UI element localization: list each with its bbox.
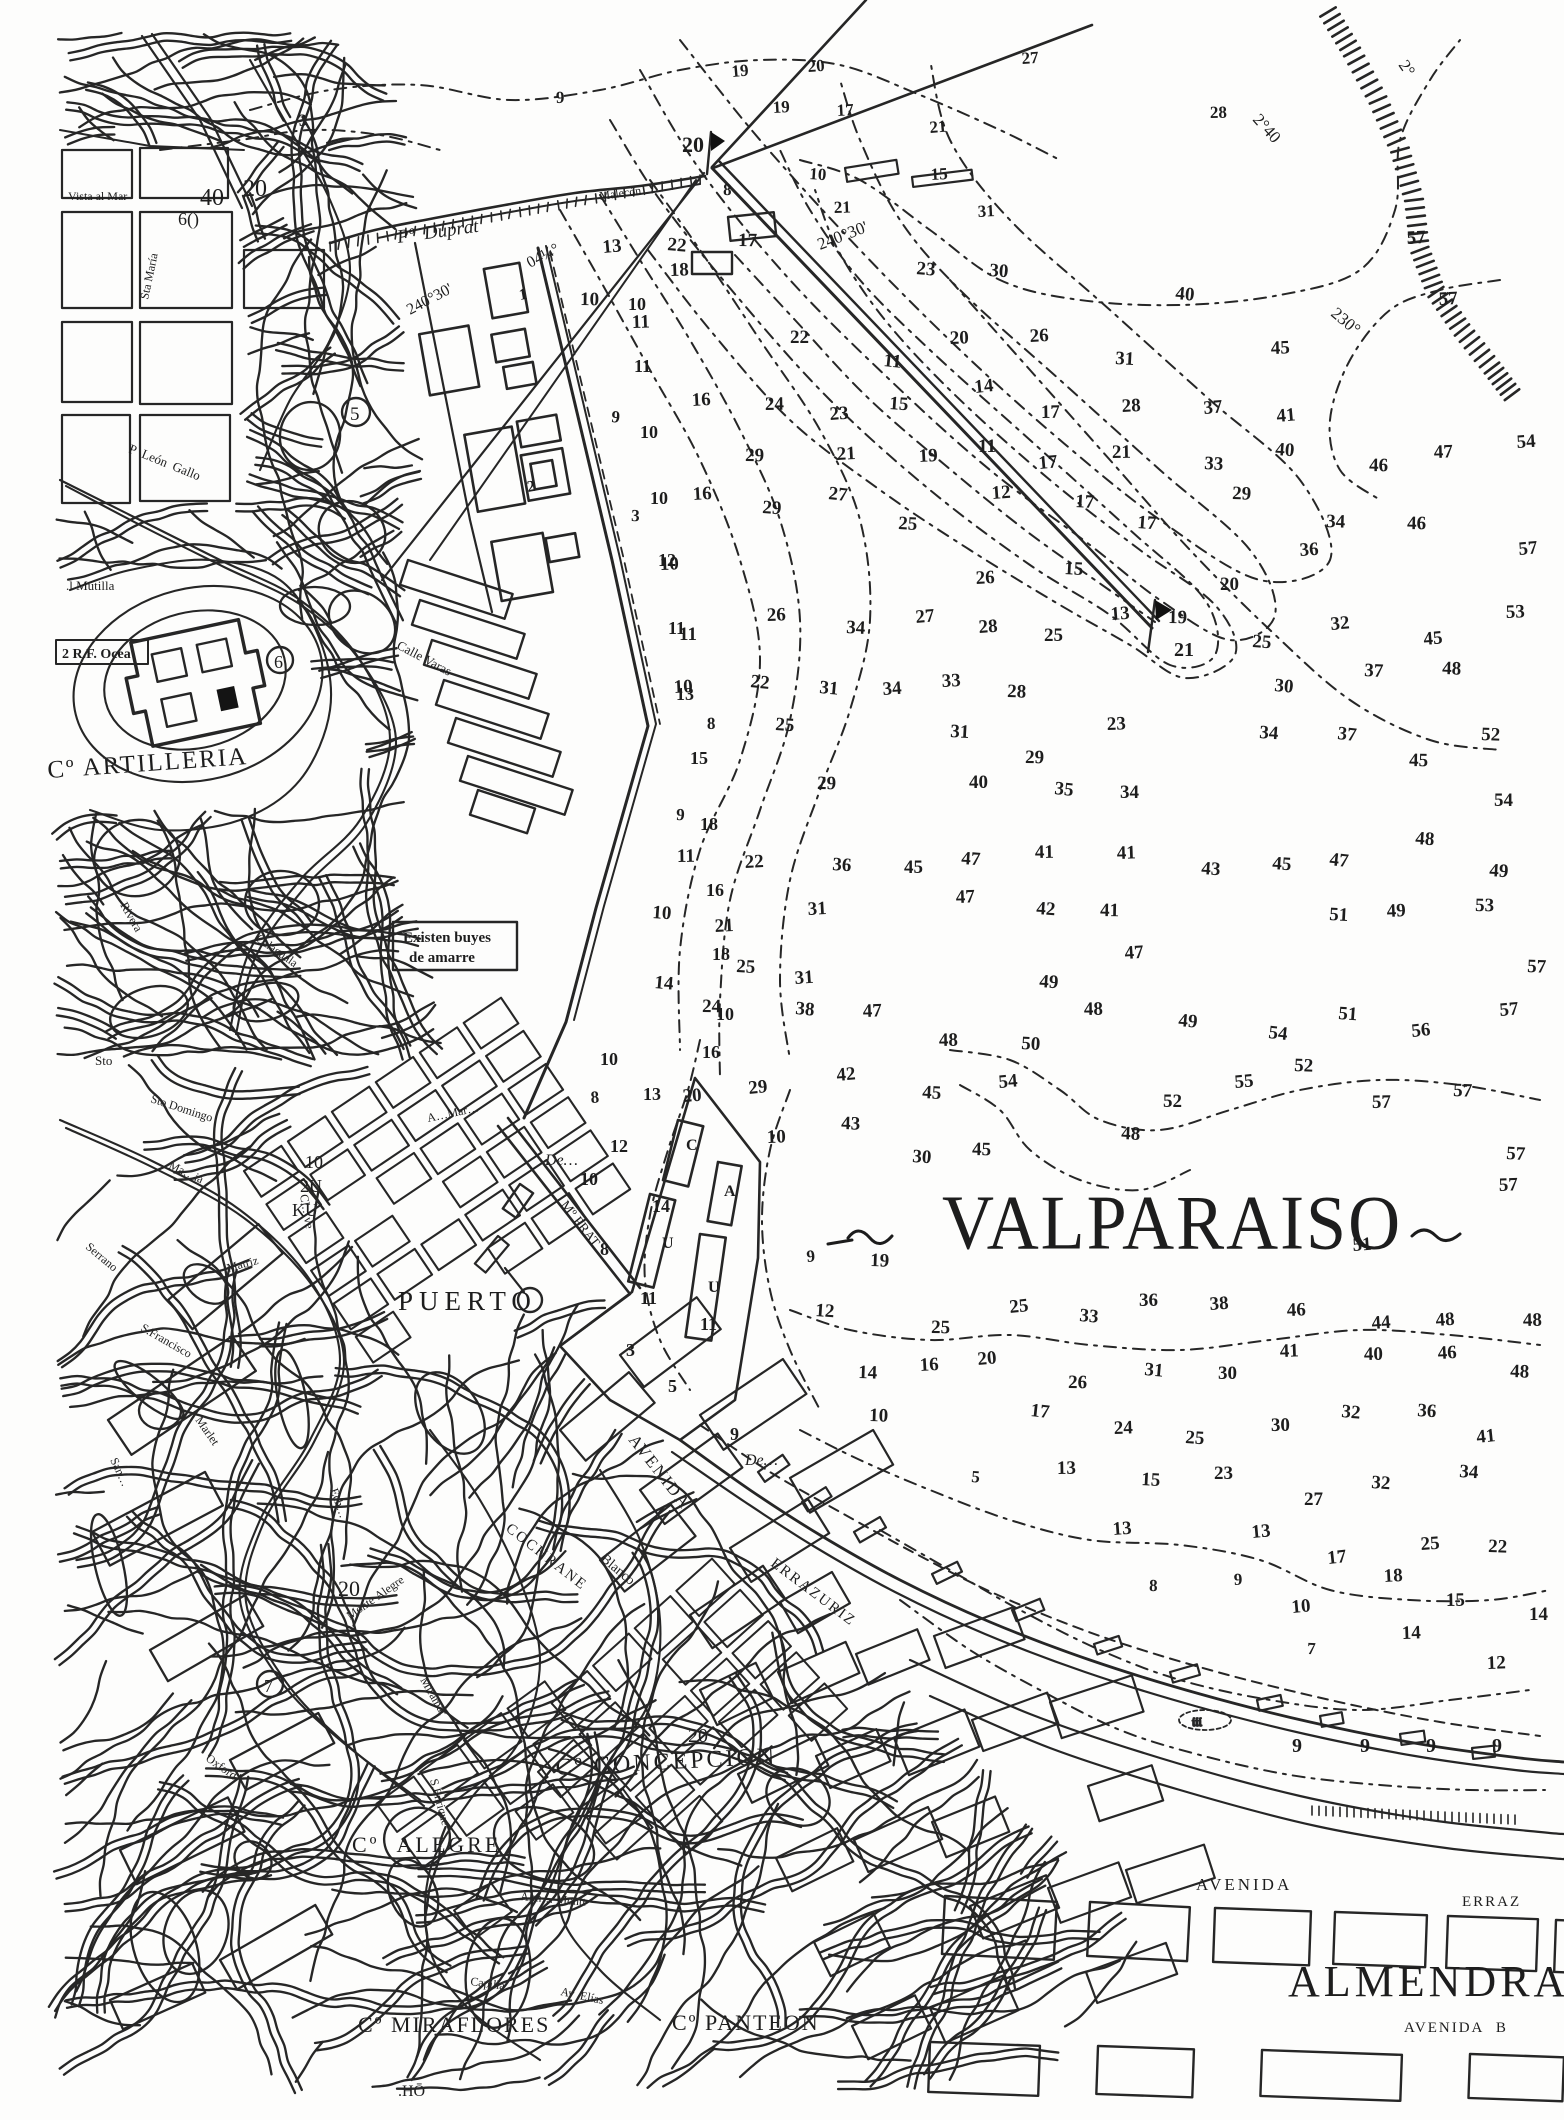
- svg-text:49: 49: [1039, 971, 1059, 993]
- svg-text:AVENIDA: AVENIDA: [1196, 1875, 1292, 1894]
- svg-text:48: 48: [1442, 658, 1462, 680]
- svg-text:47: 47: [1124, 942, 1145, 964]
- svg-text:15: 15: [1064, 558, 1084, 580]
- svg-text:5: 5: [350, 404, 360, 425]
- svg-text:ERRAZ: ERRAZ: [1462, 1894, 1521, 1910]
- svg-text:8: 8: [1149, 1576, 1158, 1595]
- svg-text:8: 8: [590, 1087, 600, 1107]
- svg-text:18: 18: [669, 259, 689, 281]
- svg-text:21: 21: [836, 443, 856, 465]
- svg-text:8: 8: [723, 180, 732, 199]
- svg-text:52: 52: [1294, 1055, 1314, 1077]
- svg-text:14: 14: [1529, 1604, 1549, 1625]
- svg-text:57: 57: [1527, 956, 1547, 978]
- svg-text:30: 30: [1271, 1415, 1290, 1436]
- svg-text:41: 41: [1475, 1425, 1496, 1448]
- svg-text:19: 19: [918, 445, 938, 467]
- svg-text:9: 9: [1292, 1735, 1302, 1757]
- svg-text:7: 7: [1307, 1639, 1317, 1658]
- svg-text:45: 45: [1272, 853, 1292, 875]
- svg-text:48: 48: [1084, 999, 1103, 1020]
- svg-text:57: 57: [1406, 227, 1427, 249]
- svg-text:6(): 6(): [178, 209, 199, 230]
- svg-text:17: 17: [836, 100, 854, 120]
- svg-text:21: 21: [833, 197, 851, 217]
- svg-text:47: 47: [961, 848, 982, 870]
- svg-text:57: 57: [1506, 1143, 1527, 1165]
- svg-text:22: 22: [1488, 1536, 1508, 1558]
- svg-text:12: 12: [815, 1300, 835, 1322]
- svg-text:22: 22: [790, 327, 809, 348]
- svg-text:16: 16: [919, 1354, 939, 1376]
- svg-text:31: 31: [977, 201, 995, 221]
- svg-text:A: A: [724, 1183, 736, 1200]
- svg-text:20: 20: [977, 1347, 998, 1370]
- svg-text:46: 46: [1437, 1342, 1457, 1364]
- svg-text:41: 41: [1279, 1340, 1299, 1362]
- svg-text:48: 48: [1523, 1310, 1542, 1331]
- svg-text:9: 9: [1426, 1735, 1436, 1757]
- svg-text:14: 14: [652, 1196, 670, 1216]
- svg-text:41: 41: [1276, 404, 1297, 427]
- svg-text:36: 36: [1139, 1290, 1158, 1311]
- svg-text:16: 16: [692, 483, 712, 505]
- svg-text:57: 57: [1372, 1092, 1392, 1113]
- svg-text:49: 49: [1386, 900, 1406, 922]
- svg-text:55: 55: [1234, 1070, 1255, 1093]
- svg-text:41: 41: [1116, 842, 1136, 864]
- svg-text:9: 9: [611, 407, 621, 427]
- svg-text:11: 11: [631, 311, 650, 333]
- svg-text:53: 53: [1475, 895, 1494, 916]
- svg-text:32: 32: [1371, 1472, 1391, 1494]
- svg-text:54: 54: [1516, 431, 1537, 453]
- svg-text:33: 33: [941, 670, 961, 692]
- svg-text:26: 26: [1029, 325, 1049, 347]
- svg-text:9: 9: [730, 1424, 739, 1444]
- svg-text:46: 46: [1407, 513, 1426, 534]
- svg-text:47: 47: [1433, 441, 1453, 463]
- svg-text:10: 10: [652, 902, 672, 924]
- svg-text:17: 17: [1326, 1546, 1348, 1569]
- svg-text:20: 20: [682, 1085, 702, 1107]
- svg-text:32: 32: [1341, 1401, 1362, 1424]
- svg-text:23: 23: [916, 258, 937, 281]
- svg-text:10: 10: [766, 1126, 786, 1148]
- svg-text:34: 34: [1120, 782, 1140, 803]
- svg-text:30: 30: [989, 260, 1009, 282]
- svg-text:15: 15: [690, 748, 708, 768]
- svg-text:19: 19: [1168, 607, 1187, 628]
- svg-text:21: 21: [714, 915, 734, 937]
- svg-text:3: 3: [631, 506, 640, 525]
- svg-text:18: 18: [700, 814, 718, 834]
- svg-text:14: 14: [654, 972, 675, 995]
- svg-text:Cº MIRAFLORES: Cº MIRAFLORES: [358, 2012, 550, 2037]
- svg-text:44: 44: [1371, 1312, 1392, 1334]
- svg-text:28: 28: [1007, 681, 1027, 703]
- svg-text:52: 52: [1481, 724, 1501, 746]
- svg-text:29: 29: [1025, 747, 1044, 768]
- svg-text:10: 10: [1291, 1595, 1312, 1618]
- svg-text:9: 9: [1360, 1735, 1370, 1757]
- svg-text:.l Mutilla: .l Mutilla: [66, 578, 115, 593]
- svg-text:11: 11: [882, 350, 902, 373]
- svg-text:22: 22: [667, 234, 688, 257]
- svg-text:48: 48: [1510, 1361, 1530, 1383]
- svg-text:40: 40: [1275, 439, 1295, 461]
- svg-text:19: 19: [870, 1250, 890, 1272]
- svg-text:9: 9: [1492, 1735, 1502, 1757]
- svg-text:36: 36: [1417, 1400, 1437, 1422]
- svg-text:36: 36: [832, 854, 852, 876]
- svg-text:47: 47: [862, 1000, 882, 1022]
- svg-text:20: 20: [1220, 574, 1239, 595]
- svg-text:37: 37: [1336, 723, 1358, 746]
- svg-text:18: 18: [712, 944, 730, 964]
- svg-text:25: 25: [931, 1317, 950, 1338]
- svg-text:45: 45: [922, 1082, 942, 1104]
- svg-text:27: 27: [915, 605, 936, 628]
- svg-text:33: 33: [1079, 1305, 1100, 1328]
- svg-text:19: 19: [772, 97, 790, 117]
- svg-text:PUERTO: PUERTO: [398, 1286, 537, 1316]
- svg-text:10: 10: [305, 1152, 323, 1172]
- svg-text:15: 15: [1141, 1469, 1161, 1491]
- svg-text:8: 8: [600, 1239, 609, 1259]
- svg-text:17: 17: [1075, 491, 1096, 513]
- svg-text:40: 40: [1175, 283, 1196, 306]
- svg-text:54: 54: [998, 1070, 1019, 1093]
- svg-text:40: 40: [969, 772, 988, 793]
- svg-text:46: 46: [1286, 1299, 1306, 1321]
- svg-text:U: U: [708, 1279, 720, 1296]
- svg-text:25: 25: [1185, 1427, 1205, 1449]
- svg-text:29: 29: [762, 497, 782, 519]
- svg-text:31: 31: [819, 677, 840, 700]
- svg-text:21: 21: [929, 117, 948, 137]
- svg-text:20: 20: [807, 56, 825, 76]
- svg-text:16: 16: [702, 1042, 720, 1062]
- svg-text:41: 41: [1100, 900, 1119, 921]
- svg-text:12: 12: [610, 1136, 628, 1156]
- svg-text:38: 38: [795, 998, 816, 1021]
- svg-text:15: 15: [889, 393, 909, 415]
- svg-text:5: 5: [668, 1376, 677, 1396]
- svg-text:25: 25: [1044, 625, 1063, 646]
- svg-text:27: 27: [1304, 1489, 1324, 1510]
- svg-text:24: 24: [765, 394, 785, 415]
- svg-text:35: 35: [1053, 778, 1074, 801]
- svg-text:36: 36: [1299, 539, 1319, 561]
- svg-text:48: 48: [1435, 1309, 1455, 1331]
- svg-text:13: 13: [1251, 1520, 1272, 1543]
- svg-text:17: 17: [738, 230, 758, 251]
- svg-text:42: 42: [1036, 898, 1056, 920]
- svg-text:11: 11: [668, 618, 685, 638]
- svg-text:48: 48: [1121, 1123, 1141, 1145]
- svg-text:15: 15: [1446, 1590, 1465, 1611]
- svg-text:46: 46: [1369, 455, 1388, 476]
- svg-text:34: 34: [1326, 511, 1346, 533]
- svg-text:16: 16: [706, 880, 724, 900]
- svg-text:34: 34: [882, 678, 903, 700]
- svg-text:37: 37: [1203, 396, 1224, 419]
- svg-text:13: 13: [1057, 1458, 1076, 1479]
- svg-text:20: 20: [949, 327, 969, 349]
- svg-text:57: 57: [1453, 1080, 1473, 1102]
- svg-text:30: 30: [1218, 1363, 1237, 1384]
- svg-text:16: 16: [691, 389, 711, 411]
- svg-text:de amarre: de amarre: [409, 950, 475, 966]
- svg-text:37: 37: [1364, 660, 1385, 682]
- svg-text:VALPARAISO: VALPARAISO: [942, 1180, 1402, 1266]
- svg-text:27: 27: [1021, 48, 1040, 68]
- svg-text:13: 13: [602, 235, 623, 258]
- svg-text:38: 38: [1209, 1293, 1229, 1315]
- svg-text:10: 10: [650, 488, 668, 508]
- svg-text:25: 25: [898, 513, 918, 535]
- svg-text:45: 45: [972, 1139, 991, 1160]
- svg-text:54: 54: [1494, 790, 1514, 811]
- svg-text:6: 6: [274, 652, 283, 672]
- svg-text:49: 49: [1178, 1010, 1199, 1033]
- svg-text:21: 21: [1174, 639, 1194, 661]
- svg-text:43: 43: [841, 1113, 861, 1135]
- svg-text:51: 51: [1329, 904, 1349, 926]
- svg-text:9: 9: [556, 88, 565, 107]
- svg-text:22: 22: [749, 671, 770, 694]
- svg-text:14: 14: [858, 1362, 878, 1384]
- svg-text:31: 31: [794, 967, 814, 989]
- svg-text:28: 28: [1210, 103, 1227, 122]
- svg-text:5: 5: [971, 1467, 981, 1487]
- svg-text:31: 31: [807, 898, 827, 920]
- svg-text:48: 48: [939, 1030, 958, 1051]
- svg-text:56: 56: [1410, 1019, 1431, 1042]
- svg-text:Sto: Sto: [95, 1053, 112, 1068]
- svg-text:14: 14: [1401, 1622, 1421, 1644]
- svg-text:57: 57: [1438, 288, 1459, 310]
- svg-text:AVENIDA B: AVENIDA B: [1404, 2020, 1508, 2036]
- svg-text:U: U: [662, 1235, 674, 1252]
- svg-text:51: 51: [1338, 1003, 1358, 1025]
- svg-text:48: 48: [1415, 828, 1435, 850]
- svg-text:25: 25: [1420, 1533, 1440, 1555]
- svg-text:25: 25: [1252, 631, 1272, 653]
- svg-text:54: 54: [1267, 1022, 1289, 1045]
- svg-text:47: 47: [1328, 849, 1350, 872]
- svg-text:32: 32: [1330, 612, 1351, 635]
- svg-text:41: 41: [1035, 842, 1054, 863]
- svg-text:10: 10: [628, 294, 646, 314]
- svg-text:Vista al Mar: Vista al Mar: [68, 189, 127, 203]
- svg-text:17: 17: [1029, 1400, 1051, 1423]
- svg-text:43: 43: [1201, 858, 1221, 880]
- svg-text:49: 49: [1489, 860, 1509, 882]
- svg-text:34: 34: [1259, 722, 1280, 744]
- svg-text:50: 50: [1021, 1033, 1041, 1055]
- svg-text:10: 10: [640, 422, 658, 442]
- svg-text:C: C: [686, 1137, 698, 1154]
- svg-text:10: 10: [600, 1049, 618, 1069]
- svg-text:11: 11: [634, 356, 651, 376]
- svg-text:9: 9: [806, 1246, 816, 1266]
- svg-text:11: 11: [700, 1314, 717, 1334]
- svg-text:29: 29: [817, 773, 836, 794]
- svg-text:29: 29: [745, 445, 764, 466]
- svg-text:15: 15: [930, 164, 948, 184]
- svg-text:20: 20: [682, 132, 704, 157]
- svg-text:24: 24: [1113, 1417, 1133, 1439]
- svg-text:13: 13: [1110, 603, 1130, 625]
- svg-text:12: 12: [1486, 1652, 1506, 1674]
- svg-text:17: 17: [1041, 402, 1061, 423]
- svg-text:57: 57: [1498, 1174, 1518, 1196]
- svg-text:.HŌ: .HŌ: [398, 2083, 425, 2100]
- svg-text:25: 25: [736, 956, 756, 978]
- svg-text:12: 12: [658, 550, 676, 570]
- svg-text:13: 13: [676, 684, 694, 704]
- svg-text:30: 30: [912, 1146, 932, 1168]
- svg-text:45: 45: [904, 857, 923, 878]
- svg-text:3: 3: [626, 1340, 635, 1360]
- svg-text:23: 23: [1214, 1463, 1233, 1484]
- svg-text:9: 9: [676, 805, 685, 824]
- svg-text:30: 30: [1274, 675, 1295, 698]
- svg-text:23: 23: [829, 403, 849, 425]
- svg-text:10: 10: [580, 1169, 598, 1189]
- svg-text:53: 53: [1505, 601, 1525, 623]
- svg-text:28: 28: [1121, 395, 1141, 417]
- svg-text:47: 47: [955, 886, 975, 908]
- svg-text:31: 31: [1115, 348, 1135, 370]
- svg-text:11: 11: [978, 436, 996, 457]
- svg-text:27: 27: [827, 483, 849, 506]
- svg-text:12: 12: [991, 482, 1011, 504]
- svg-text:34: 34: [1459, 1461, 1480, 1483]
- svg-text:29: 29: [1232, 483, 1252, 505]
- svg-text:45: 45: [1423, 627, 1444, 650]
- svg-text:31: 31: [950, 721, 970, 743]
- svg-text:ίίί: ίίί: [1192, 1715, 1202, 1729]
- svg-text:8: 8: [707, 714, 716, 733]
- svg-text:52: 52: [1163, 1091, 1182, 1112]
- svg-text:29: 29: [747, 1076, 768, 1099]
- svg-text:18: 18: [1383, 1565, 1403, 1587]
- svg-text:11: 11: [677, 846, 695, 867]
- svg-text:11: 11: [640, 1288, 657, 1308]
- svg-text:14: 14: [973, 375, 995, 398]
- svg-text:17: 17: [1137, 512, 1158, 534]
- svg-text:40: 40: [1364, 1344, 1383, 1365]
- svg-text:25: 25: [775, 714, 795, 736]
- svg-text:10: 10: [869, 1405, 889, 1427]
- svg-text:9: 9: [1233, 1570, 1242, 1589]
- svg-text:10: 10: [580, 289, 599, 310]
- svg-text:13: 13: [643, 1084, 661, 1104]
- svg-text:17: 17: [1038, 451, 1059, 474]
- svg-text:ALMENDRAL: ALMENDRAL: [1288, 1957, 1564, 2006]
- svg-text:28: 28: [978, 616, 998, 638]
- svg-text:57: 57: [1499, 998, 1520, 1021]
- svg-text:34: 34: [846, 617, 867, 639]
- svg-text:10: 10: [716, 1004, 734, 1024]
- svg-text:22: 22: [744, 851, 764, 873]
- svg-text:42: 42: [836, 1063, 857, 1086]
- svg-text:13: 13: [1112, 1518, 1132, 1540]
- svg-text:40: 40: [200, 185, 224, 211]
- svg-text:45: 45: [1270, 337, 1290, 359]
- svg-text:26: 26: [1068, 1372, 1087, 1393]
- svg-text:26: 26: [766, 604, 786, 626]
- svg-text:51: 51: [1352, 1234, 1372, 1256]
- svg-text:31: 31: [1144, 1359, 1165, 1382]
- svg-text:25: 25: [1008, 1295, 1029, 1318]
- svg-text:21: 21: [1112, 442, 1131, 463]
- svg-text:10: 10: [809, 164, 827, 184]
- svg-text:33: 33: [1204, 453, 1224, 475]
- svg-text:23: 23: [1106, 713, 1126, 735]
- svg-text:57: 57: [1518, 537, 1539, 560]
- svg-text:26: 26: [975, 567, 995, 589]
- svg-text:45: 45: [1409, 750, 1428, 771]
- svg-text:19: 19: [731, 61, 750, 81]
